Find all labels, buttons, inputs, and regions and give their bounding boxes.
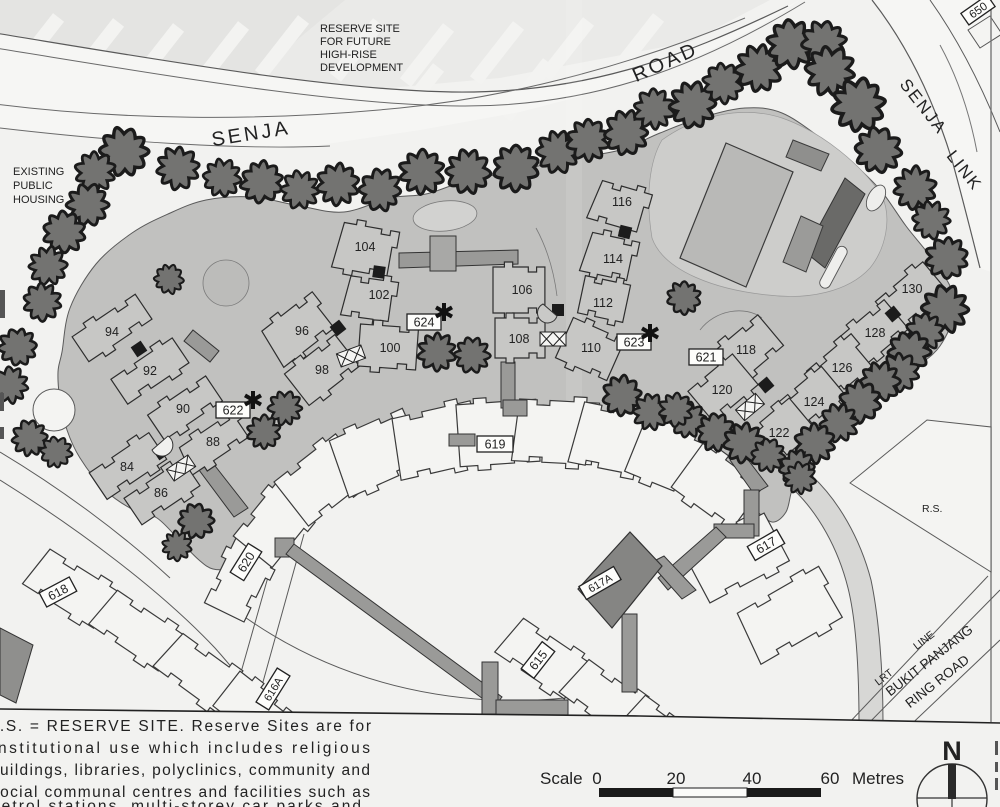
svg-text:96: 96 [295, 324, 309, 338]
svg-text:0: 0 [592, 769, 601, 788]
svg-text:PUBLIC: PUBLIC [13, 180, 53, 192]
svg-text:126: 126 [832, 361, 853, 375]
svg-text:619: 619 [485, 438, 506, 452]
svg-text:116: 116 [612, 195, 632, 209]
svg-text:Scale: Scale [540, 769, 583, 788]
svg-text:Metres: Metres [852, 769, 904, 788]
svg-text:118: 118 [736, 343, 756, 357]
svg-text:130: 130 [902, 282, 923, 296]
svg-text:124: 124 [804, 395, 825, 409]
svg-text:90: 90 [176, 402, 190, 416]
svg-text:40: 40 [743, 769, 762, 788]
svg-text:EXISTING: EXISTING [13, 166, 64, 178]
svg-text:104: 104 [355, 240, 376, 254]
svg-text:108: 108 [509, 332, 530, 346]
svg-text:R.S. = RESERVE SITE. Reserve S: R.S. = RESERVE SITE. Reserve Sites are f… [0, 718, 371, 735]
svg-text:N: N [942, 736, 962, 766]
svg-text:621: 621 [696, 351, 717, 365]
svg-text:86: 86 [154, 486, 168, 500]
svg-text:624: 624 [414, 316, 435, 330]
svg-text:84: 84 [120, 460, 134, 474]
svg-text:FOR FUTURE: FOR FUTURE [320, 36, 391, 48]
svg-text:112: 112 [593, 296, 613, 310]
svg-text:HOUSING: HOUSING [13, 194, 64, 206]
svg-text:122: 122 [769, 426, 790, 440]
svg-text:120: 120 [712, 383, 733, 397]
svg-text:petrol stations, multi-storey: petrol stations, multi-storey car parks … [0, 798, 361, 807]
svg-text:623: 623 [624, 336, 645, 350]
svg-text:114: 114 [603, 252, 623, 266]
svg-text:106: 106 [512, 283, 533, 297]
svg-text:60: 60 [821, 769, 840, 788]
svg-text:92: 92 [143, 364, 157, 378]
svg-text:110: 110 [581, 341, 601, 355]
svg-text:128: 128 [865, 326, 886, 340]
svg-text:R.S.: R.S. [922, 503, 942, 515]
svg-text:102: 102 [369, 288, 390, 302]
svg-text:DEVELOPMENT: DEVELOPMENT [320, 62, 403, 74]
svg-text:98: 98 [315, 363, 329, 377]
svg-text:HIGH-RISE: HIGH-RISE [320, 49, 377, 61]
svg-text:RESERVE SITE: RESERVE SITE [320, 23, 400, 35]
svg-text:88: 88 [206, 435, 220, 449]
svg-text:buildings, libraries, polyclin: buildings, libraries, polyclinics, commu… [0, 762, 370, 779]
svg-text:100: 100 [380, 341, 401, 355]
svg-text:94: 94 [105, 325, 119, 339]
svg-text:622: 622 [223, 404, 244, 418]
svg-text:20: 20 [667, 769, 686, 788]
